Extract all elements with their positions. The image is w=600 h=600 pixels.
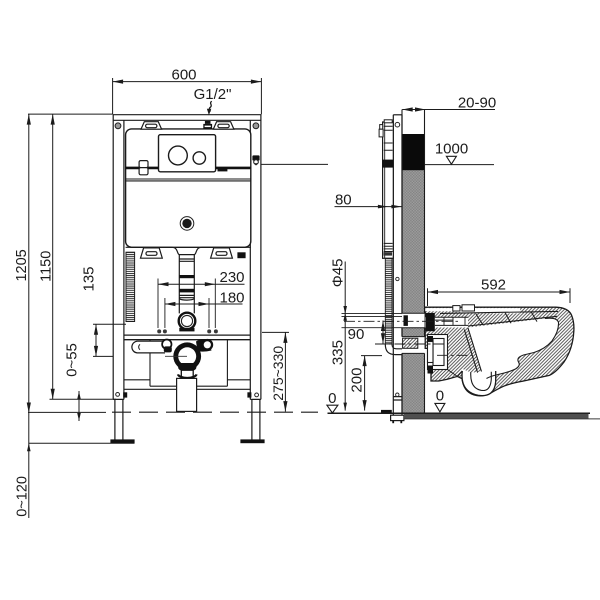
svg-text:600: 600 [171, 67, 196, 84]
svg-text:135: 135 [81, 266, 98, 291]
svg-text:200: 200 [349, 368, 366, 393]
svg-text:1205: 1205 [14, 249, 30, 281]
svg-text:275~330: 275~330 [270, 346, 286, 401]
svg-text:1150: 1150 [38, 251, 54, 282]
svg-text:20-90: 20-90 [458, 95, 496, 112]
svg-text:80: 80 [335, 192, 352, 209]
svg-text:335: 335 [330, 340, 347, 365]
svg-text:G1/2": G1/2" [194, 86, 232, 103]
svg-text:1000: 1000 [435, 141, 468, 158]
svg-text:0: 0 [436, 388, 444, 405]
svg-text:0: 0 [328, 390, 336, 407]
svg-text:Φ45: Φ45 [330, 259, 347, 288]
svg-text:0~55: 0~55 [64, 343, 81, 377]
svg-text:0~120: 0~120 [15, 476, 31, 517]
svg-text:230: 230 [219, 269, 244, 286]
svg-text:592: 592 [481, 277, 506, 294]
svg-text:180: 180 [219, 290, 244, 307]
svg-text:90: 90 [348, 326, 365, 343]
